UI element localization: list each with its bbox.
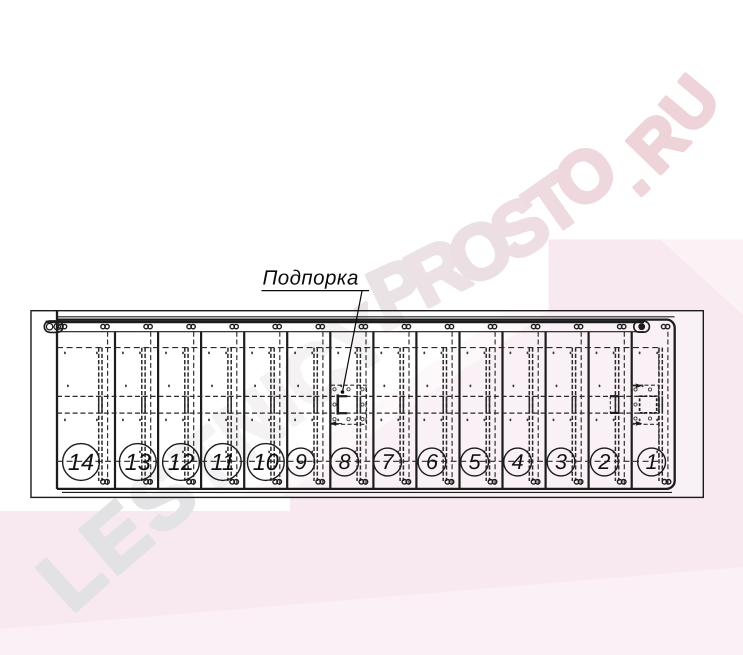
svg-text:10: 10 bbox=[253, 449, 279, 475]
svg-text:2: 2 bbox=[597, 450, 610, 474]
svg-text:13: 13 bbox=[125, 449, 151, 475]
svg-text:5: 5 bbox=[469, 450, 482, 474]
svg-text:6: 6 bbox=[426, 450, 438, 474]
svg-text:7: 7 bbox=[382, 450, 395, 474]
svg-text:3: 3 bbox=[555, 450, 567, 474]
svg-text:1: 1 bbox=[646, 450, 658, 474]
svg-text:11: 11 bbox=[211, 449, 235, 475]
svg-text:Подпорка: Подпорка bbox=[263, 267, 359, 290]
svg-text:9: 9 bbox=[295, 450, 307, 474]
svg-text:4: 4 bbox=[512, 450, 524, 474]
svg-text:14: 14 bbox=[68, 449, 94, 475]
svg-text:12: 12 bbox=[168, 449, 194, 475]
svg-text:8: 8 bbox=[339, 450, 351, 474]
